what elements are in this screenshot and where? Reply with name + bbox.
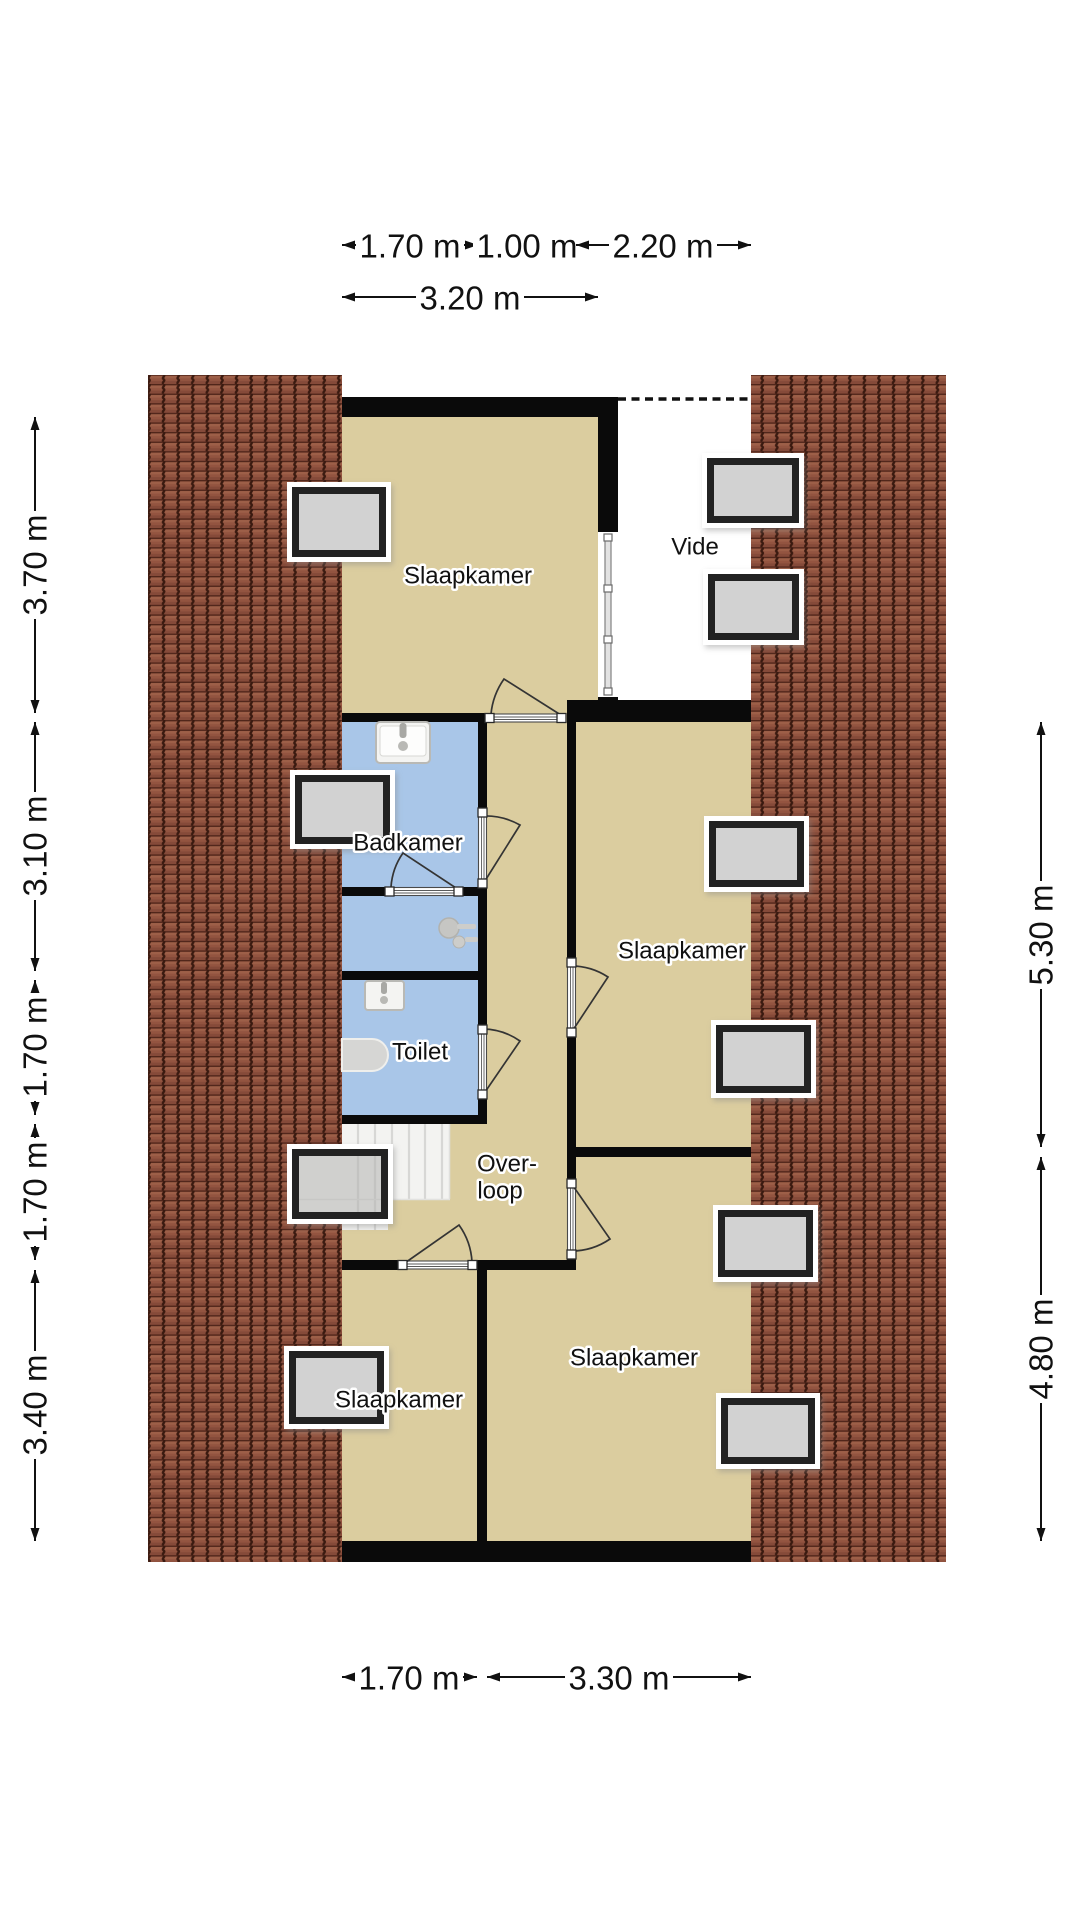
svg-text:3.30 m: 3.30 m xyxy=(569,1660,670,1697)
svg-text:Slaapkamer: Slaapkamer xyxy=(404,563,532,590)
svg-text:3.10 m: 3.10 m xyxy=(17,796,54,897)
svg-text:1.00 m: 1.00 m xyxy=(477,228,578,265)
svg-text:3.20 m: 3.20 m xyxy=(420,280,521,317)
svg-text:3.40 m: 3.40 m xyxy=(17,1355,54,1456)
svg-text:Slaapkamer: Slaapkamer xyxy=(618,938,746,965)
svg-text:Over-: Over- xyxy=(477,1151,537,1178)
svg-text:1.70 m: 1.70 m xyxy=(359,1660,460,1697)
svg-text:5.30 m: 5.30 m xyxy=(1023,885,1060,986)
svg-text:Slaapkamer: Slaapkamer xyxy=(335,1387,463,1414)
svg-text:1.70 m: 1.70 m xyxy=(360,228,461,265)
svg-text:Slaapkamer: Slaapkamer xyxy=(570,1345,698,1372)
svg-text:2.20 m: 2.20 m xyxy=(613,228,714,265)
svg-text:4.80 m: 4.80 m xyxy=(1023,1299,1060,1400)
svg-text:Badkamer: Badkamer xyxy=(353,830,462,857)
svg-text:Toilet: Toilet xyxy=(392,1039,448,1066)
svg-text:1.70 m: 1.70 m xyxy=(17,997,54,1098)
svg-text:3.70 m: 3.70 m xyxy=(17,515,54,616)
svg-text:loop: loop xyxy=(477,1178,522,1205)
svg-text:Vide: Vide xyxy=(671,534,719,561)
svg-text:1.70 m: 1.70 m xyxy=(17,1142,54,1243)
